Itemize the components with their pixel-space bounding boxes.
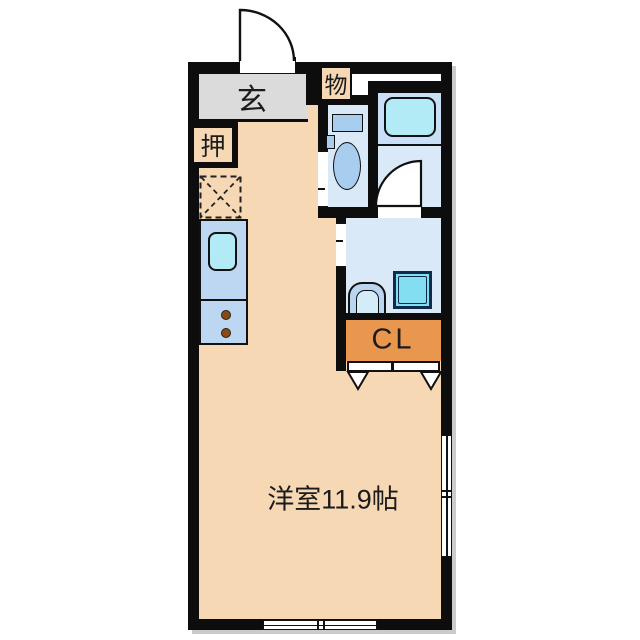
window-bottom-rail-1 xyxy=(317,620,319,630)
stove-burner-1 xyxy=(221,310,231,320)
refrigerator-space xyxy=(199,175,242,219)
toilet-bowl xyxy=(333,142,361,190)
toilet-door-tick xyxy=(318,188,325,190)
floor-plan: 玄 押 物 CL 洋室11.9帖 xyxy=(0,0,640,640)
kitchen-sink xyxy=(208,232,237,271)
washroom-door xyxy=(336,222,346,268)
wall-bath-top xyxy=(368,81,441,93)
main-room-label: 洋室11.9帖 xyxy=(267,478,399,517)
window-right-rail-2 xyxy=(441,496,452,498)
washroom-door-tick xyxy=(336,240,343,242)
stove-burner-2 xyxy=(221,328,231,338)
wall-washroom-bottom xyxy=(336,313,441,320)
entrance-door-swing xyxy=(233,3,299,65)
toilet-flush-handle xyxy=(326,135,335,149)
window-right-rail-1 xyxy=(441,490,452,492)
window-bottom-center-line xyxy=(264,625,376,627)
kitchen-stove-counter xyxy=(199,299,248,345)
toilet-door xyxy=(318,150,328,208)
wash-basin-bowl xyxy=(356,290,379,313)
window-bottom-rail-2 xyxy=(323,620,325,630)
closet-label: CL xyxy=(371,324,414,357)
oshiire-label: 押 xyxy=(200,127,225,163)
bathroom-door-swing xyxy=(372,156,426,210)
toilet-tank xyxy=(332,114,363,132)
closet-door-swing-markers xyxy=(345,371,445,392)
entrance-label: 玄 xyxy=(237,75,267,119)
washing-machine-pan-inner xyxy=(398,276,427,304)
bathtub xyxy=(384,97,436,137)
storage-label: 物 xyxy=(325,66,348,100)
void-notch-vertical xyxy=(352,74,368,95)
